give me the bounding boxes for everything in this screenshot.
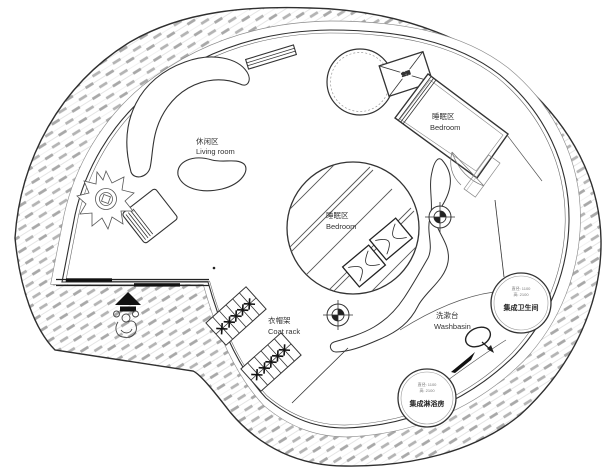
- living-room-label-en: Living room: [196, 147, 235, 156]
- entrance-door-panel: [66, 278, 112, 281]
- shower-pod-dim2: 高: 2100: [419, 387, 435, 393]
- living-room-label-zh: 休闲区: [196, 136, 219, 146]
- washbasin-label-en: Washbasin: [434, 322, 471, 331]
- coat-rack-label-en: Coat rack: [268, 327, 300, 336]
- entrance-door-panel: [134, 283, 180, 286]
- bedroom-bed-label-zh: 睡眠区: [432, 112, 455, 121]
- washbasin-label-zh: 洗漱台: [436, 310, 459, 320]
- coat-rack-label-zh: 衣帽架: [268, 315, 291, 325]
- shower-pod: 直径: 1100 高: 2100 集成淋浴房: [398, 369, 456, 427]
- floor-plan-page: 空调: [0, 0, 611, 473]
- bedroom-bed-label-en: Bedroom: [430, 123, 460, 132]
- dot-mark: [213, 267, 216, 270]
- bedroom-center-label-en: Bedroom: [326, 222, 356, 231]
- bathroom-pod: 直径: 1100 高: 2100 集成卫生间: [491, 273, 551, 333]
- round-table: [327, 49, 393, 115]
- shower-pod-label: 集成淋浴房: [409, 399, 445, 408]
- floor-plan: 空调: [0, 0, 611, 473]
- bathroom-pod-dim2: 高: 2100: [513, 291, 529, 297]
- bathroom-pod-label: 集成卫生间: [503, 303, 539, 312]
- shower-pod-dim1: 直径: 1100: [418, 381, 438, 387]
- bathroom-pod-dim1: 直径: 1100: [512, 285, 532, 291]
- bedroom-center-label-zh: 睡眠区: [326, 211, 349, 220]
